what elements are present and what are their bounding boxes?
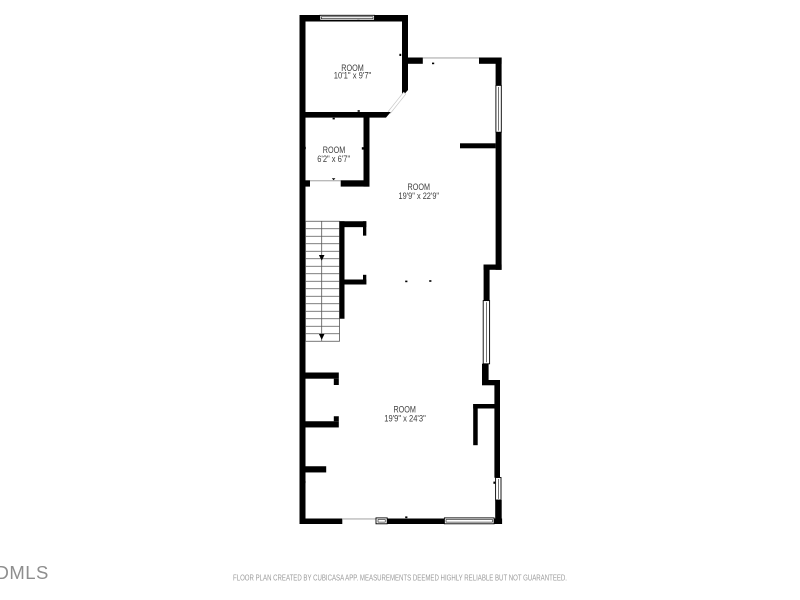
svg-text:19'9" x 24'3": 19'9" x 24'3" — [384, 413, 426, 423]
svg-text:6'2" x 6'7": 6'2" x 6'7" — [317, 154, 350, 164]
svg-text:DMLS: DMLS — [0, 562, 49, 583]
svg-text:FLOOR PLAN CREATED BY CUBICASA: FLOOR PLAN CREATED BY CUBICASA APP. MEAS… — [233, 573, 567, 582]
svg-text:10'1" x 9'7": 10'1" x 9'7" — [334, 71, 372, 81]
svg-text:19'9" x 22'9": 19'9" x 22'9" — [399, 191, 440, 201]
